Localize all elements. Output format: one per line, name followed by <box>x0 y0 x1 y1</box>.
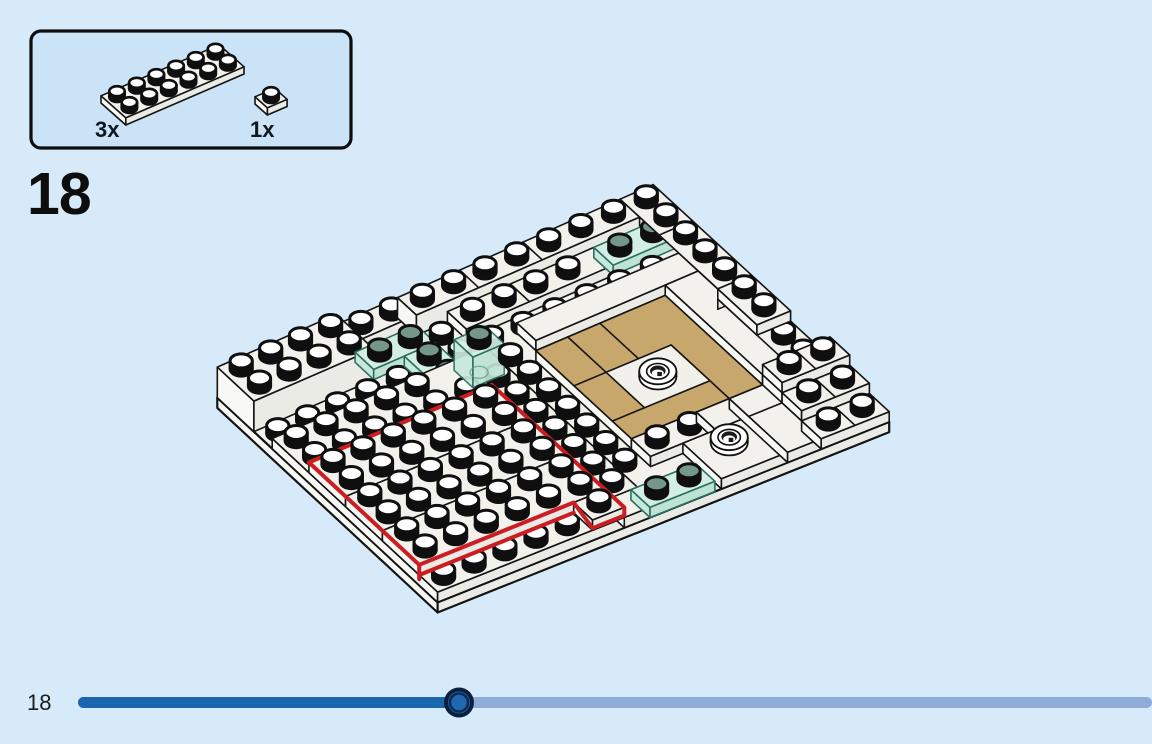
svg-text:18: 18 <box>27 161 91 227</box>
svg-text:3x: 3x <box>95 117 120 142</box>
svg-text:18: 18 <box>27 690 51 715</box>
svg-text:1x: 1x <box>250 117 275 142</box>
